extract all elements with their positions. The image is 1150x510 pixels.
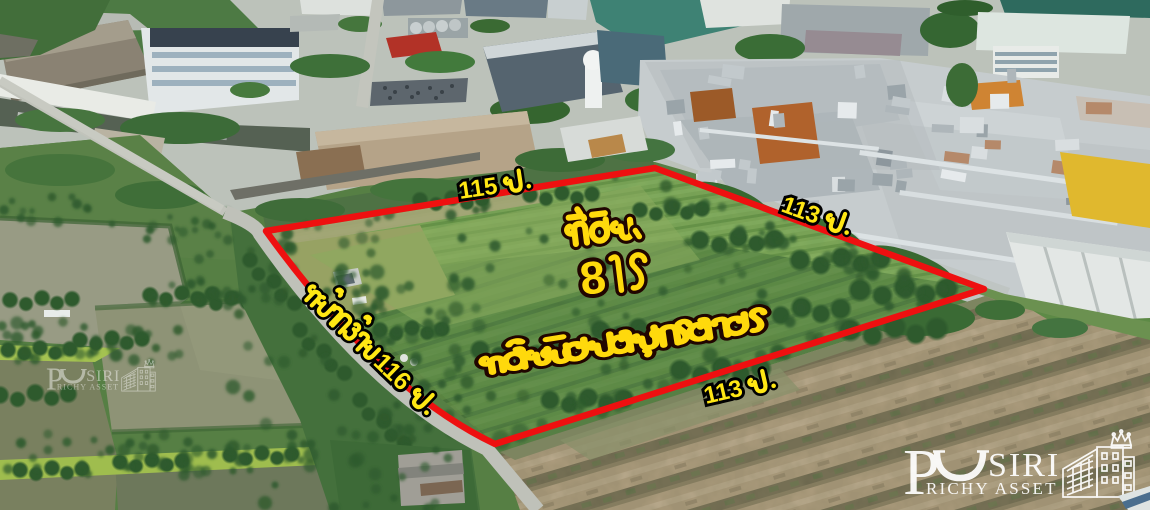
svg-text:115: 115 — [457, 173, 499, 205]
